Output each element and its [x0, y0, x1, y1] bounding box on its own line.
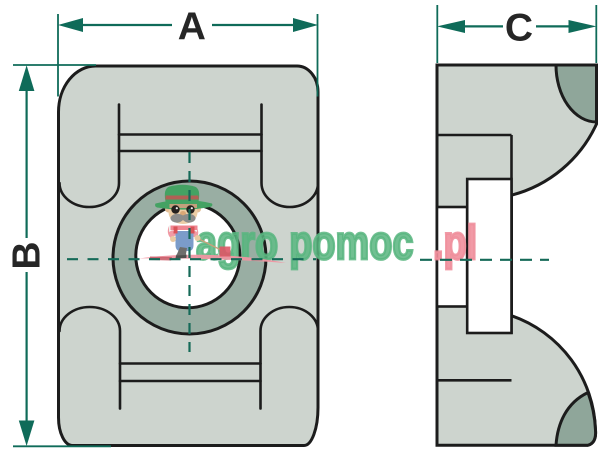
svg-text:A: A	[178, 5, 206, 48]
svg-text:B: B	[6, 241, 49, 269]
svg-text:agropomoc.pl: agropomoc.pl	[196, 217, 477, 270]
svg-text:C: C	[505, 6, 533, 49]
